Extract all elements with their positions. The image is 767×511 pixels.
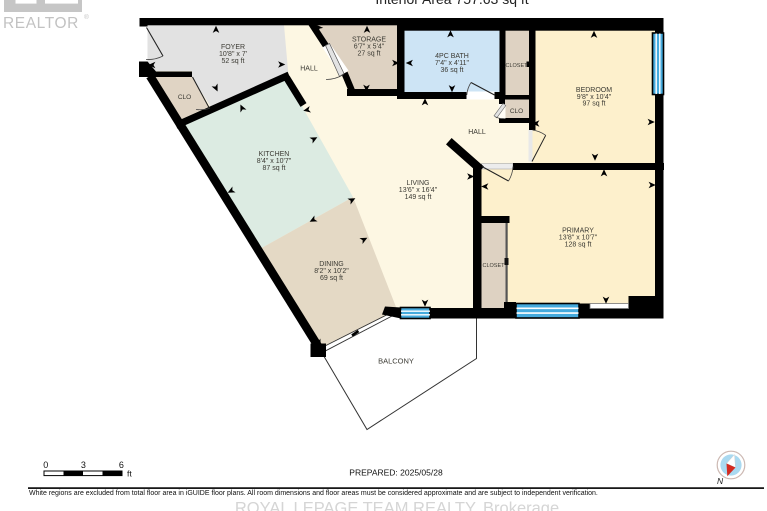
svg-text:0: 0 xyxy=(43,460,48,470)
svg-text:PREPARED: 2025/05/28: PREPARED: 2025/05/28 xyxy=(349,468,443,478)
svg-text:97 sq ft: 97 sq ft xyxy=(583,101,606,108)
svg-text:Interior Area 757.63 sq ft: Interior Area 757.63 sq ft xyxy=(375,0,528,7)
svg-text:N: N xyxy=(717,476,724,486)
svg-text:10'8" x 7': 10'8" x 7' xyxy=(219,51,247,58)
svg-text:CLOSET: CLOSET xyxy=(483,263,506,269)
svg-text:7'4" x 4'11": 7'4" x 4'11" xyxy=(435,60,469,67)
svg-text:ROYAL LEPAGE TEAM REALTY, Brok: ROYAL LEPAGE TEAM REALTY, Brokerage xyxy=(235,500,559,511)
svg-text:6'7" x 5'4": 6'7" x 5'4" xyxy=(354,44,385,51)
svg-text:CLO: CLO xyxy=(510,108,523,115)
svg-text:27 sq ft: 27 sq ft xyxy=(358,51,381,58)
svg-text:DINING: DINING xyxy=(319,261,344,268)
svg-text:KITCHEN: KITCHEN xyxy=(259,151,290,158)
svg-text:®: ® xyxy=(84,13,89,21)
svg-text:BEDROOM: BEDROOM xyxy=(576,87,612,94)
svg-text:3: 3 xyxy=(81,460,86,470)
svg-text:PRIMARY: PRIMARY xyxy=(562,228,594,235)
svg-text:STORAGE: STORAGE xyxy=(352,37,386,44)
svg-text:69 sq ft: 69 sq ft xyxy=(320,275,343,282)
svg-text:CLOSET: CLOSET xyxy=(506,63,529,69)
svg-text:LIVING: LIVING xyxy=(407,180,430,187)
svg-text:CLO: CLO xyxy=(178,94,191,101)
svg-text:149 sq ft: 149 sq ft xyxy=(405,194,432,201)
svg-text:8'2" x 10'2": 8'2" x 10'2" xyxy=(314,268,349,275)
svg-text:36 sq ft: 36 sq ft xyxy=(441,67,464,74)
svg-text:REALTOR: REALTOR xyxy=(3,15,79,32)
svg-text:ft: ft xyxy=(127,469,132,479)
svg-text:6: 6 xyxy=(119,460,124,470)
svg-text:FOYER: FOYER xyxy=(221,44,245,51)
svg-text:BALCONY: BALCONY xyxy=(378,357,414,366)
svg-text:White regions are excluded fro: White regions are excluded from total fl… xyxy=(29,490,598,497)
svg-text:8'4" x 10'7": 8'4" x 10'7" xyxy=(257,158,292,165)
svg-text:HALL: HALL xyxy=(468,129,486,136)
svg-text:128 sq ft: 128 sq ft xyxy=(565,242,592,249)
svg-text:4PC BATH: 4PC BATH xyxy=(435,53,469,60)
svg-text:13'8" x 10'7": 13'8" x 10'7" xyxy=(559,235,598,242)
svg-text:13'6" x 16'4": 13'6" x 16'4" xyxy=(399,187,438,194)
svg-text:HALL: HALL xyxy=(300,66,318,73)
svg-text:52 sq ft: 52 sq ft xyxy=(222,58,245,65)
svg-text:87 sq ft: 87 sq ft xyxy=(263,165,286,172)
